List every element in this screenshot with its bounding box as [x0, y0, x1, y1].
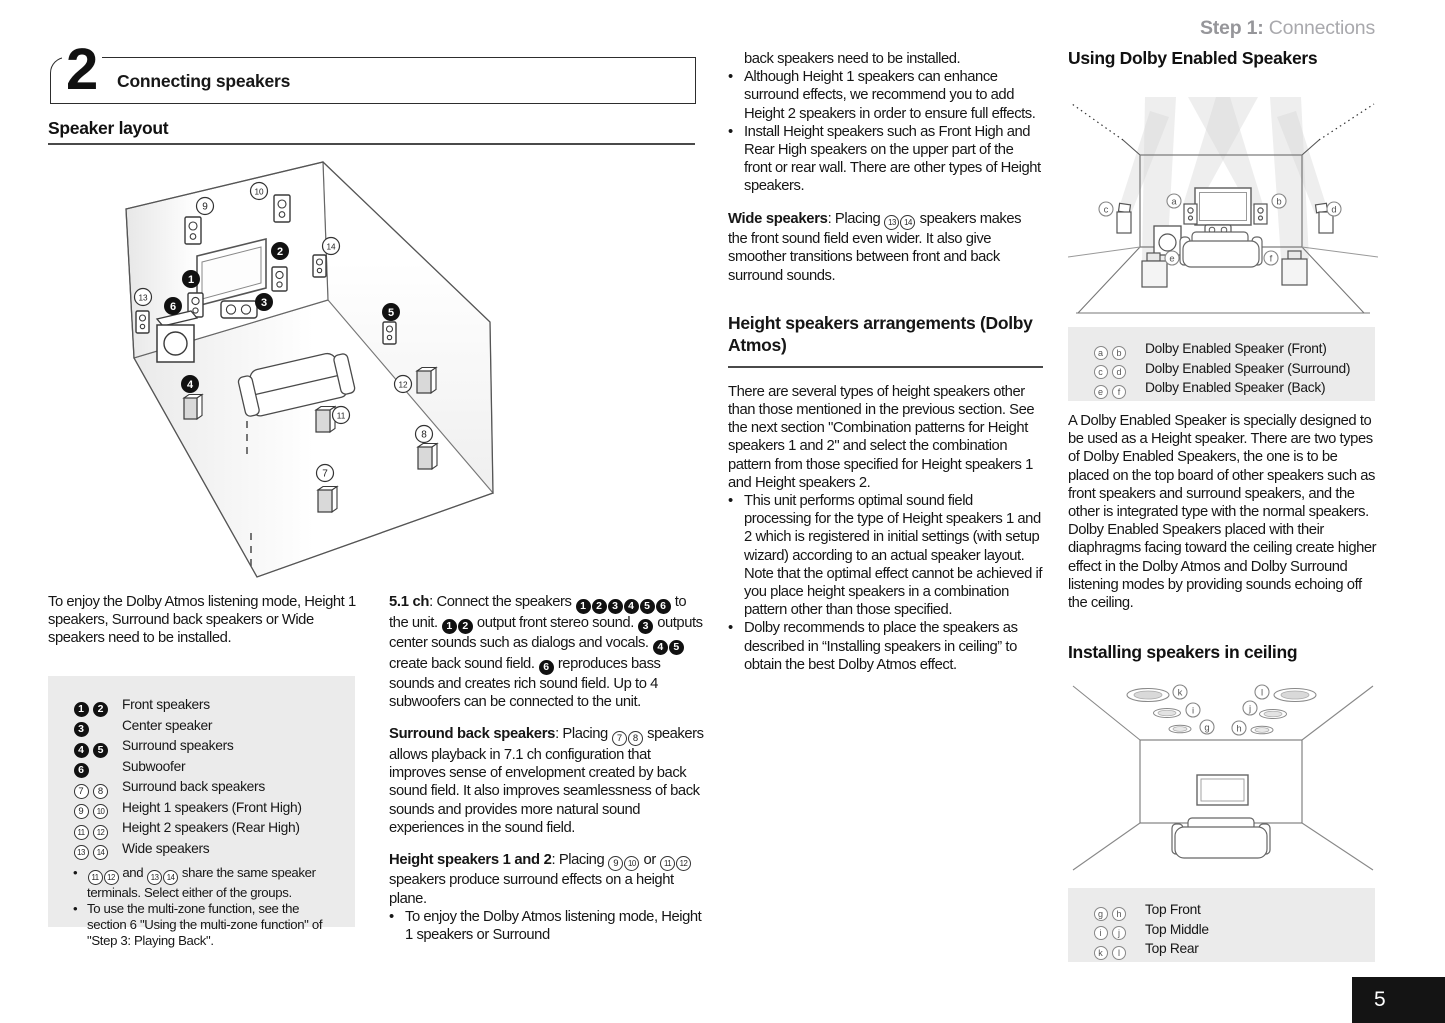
svg-text:9: 9	[202, 201, 208, 212]
legend-row: k lTop Rear	[1068, 940, 1375, 960]
section-title: Connecting speakers	[117, 71, 290, 92]
page-number-box: 5	[1352, 977, 1445, 1023]
sofa	[1172, 818, 1270, 858]
svg-text:10: 10	[254, 187, 264, 196]
legend-row: i jTop Middle	[1068, 921, 1375, 941]
col3-bullet-text: Install Height speakers such as Front Hi…	[744, 123, 1043, 196]
legend-label: Dolby Enabled Speaker (Surround)	[1145, 360, 1350, 380]
legend-note-text: 1112 and 1314 share the same speaker ter…	[87, 865, 341, 901]
svg-text:12: 12	[398, 380, 408, 389]
legend-row: 13 14Wide speakers	[48, 840, 355, 861]
legend-row: c dDolby Enabled Speaker (Surround)	[1068, 360, 1375, 380]
surround-right-speaker	[383, 322, 396, 344]
step-label: Step 1:	[1200, 17, 1264, 39]
svg-text:a: a	[1171, 196, 1177, 207]
legend-label: Top Middle	[1145, 921, 1209, 941]
col3-bullet-text: Although Height 1 speakers can enhance s…	[744, 68, 1043, 123]
legend-label: Surround speakers	[122, 737, 233, 758]
svg-text:6: 6	[170, 301, 176, 313]
para-surround-back: Surround back speakers: Placing 78 speak…	[389, 725, 705, 837]
col2-bullet: •To enjoy the Dolby Atmos listening mode…	[389, 908, 705, 944]
legend-label: Height 2 speakers (Rear High)	[122, 819, 300, 840]
svg-text:2: 2	[277, 246, 283, 258]
svg-text:11: 11	[337, 411, 346, 420]
bullet-dot: •	[728, 492, 744, 619]
col3-bullet2-text: Dolby recommends to place the speakers a…	[744, 619, 1043, 674]
legend-markers: 3	[73, 717, 122, 738]
bullet-dot: •	[389, 908, 405, 944]
legend-row: 1 2Front speakers	[48, 696, 355, 717]
svg-text:14: 14	[326, 242, 336, 251]
legend-row: 3Center speaker	[48, 717, 355, 738]
legend-markers: 11 12	[73, 819, 122, 840]
tv	[1195, 188, 1251, 225]
svg-text:1: 1	[188, 274, 194, 286]
center-speaker	[221, 301, 257, 318]
legend-label: Height 1 speakers (Front High)	[122, 799, 302, 820]
legend-markers: a b	[1093, 340, 1145, 360]
svg-text:g: g	[1204, 722, 1209, 733]
legend-row: 6Subwoofer	[48, 758, 355, 779]
legend-markers: e f	[1093, 379, 1145, 399]
legend-row: e fDolby Enabled Speaker (Back)	[1068, 379, 1375, 399]
dolby-enabled-legend-box: a bDolby Enabled Speaker (Front) c dDolb…	[1068, 327, 1375, 401]
legend-markers: k l	[1093, 940, 1145, 960]
height2-right-speaker	[417, 368, 436, 394]
speaker-layout-heading: Speaker layout	[48, 118, 168, 139]
bullet-dot: •	[73, 865, 87, 901]
legend-markers: 9 10	[73, 799, 122, 820]
col3-bullet2: •Dolby recommends to place the speakers …	[728, 619, 1043, 674]
para-height-types: There are several types of height speake…	[728, 383, 1043, 492]
col2-bullet-text: To enjoy the Dolby Atmos listening mode,…	[405, 908, 705, 944]
page-number: 5	[1374, 988, 1386, 1012]
bullet-dot: •	[728, 123, 744, 196]
legend-label: Dolby Enabled Speaker (Front)	[1145, 340, 1327, 360]
svg-text:l: l	[1261, 687, 1263, 698]
legend-label: Dolby Enabled Speaker (Back)	[1145, 379, 1325, 399]
subwoofer	[1154, 226, 1181, 255]
para-wide-speakers: Wide speakers: Placing 1314 speakers mak…	[728, 210, 1043, 285]
svg-text:f: f	[1270, 253, 1273, 264]
wide-right-speaker	[313, 255, 326, 277]
svg-text:b: b	[1276, 196, 1281, 207]
svg-text:e: e	[1169, 253, 1174, 264]
bullet-dot: •	[73, 901, 87, 950]
legend-markers: 7 8	[73, 778, 122, 799]
legend-label: Top Rear	[1145, 940, 1199, 960]
surround-left-speaker	[184, 395, 202, 420]
svg-text:j: j	[1248, 703, 1251, 714]
step-title: Connections	[1264, 17, 1375, 39]
svg-text:i: i	[1192, 705, 1194, 716]
legend-label: Wide speakers	[122, 840, 209, 861]
svg-text:7: 7	[322, 468, 328, 479]
wide-left-speaker	[136, 311, 149, 333]
surround-back-left-speaker	[318, 487, 337, 513]
subwoofer	[157, 311, 197, 362]
svg-text:h: h	[1236, 723, 1241, 734]
ceiling-legend-box: g hTop Front i jTop Middle k lTop Rear	[1068, 888, 1375, 962]
bullet-dot: •	[728, 68, 744, 123]
height2-left-speaker	[316, 407, 335, 433]
legend-row: g hTop Front	[1068, 901, 1375, 921]
height1-left-speaker	[185, 217, 201, 244]
col1-intro: To enjoy the Dolby Atmos listening mode,…	[48, 593, 366, 648]
col2: 5.1 ch: Connect the speakers 123456 to t…	[389, 593, 705, 944]
svg-text:8: 8	[421, 429, 427, 440]
running-header: Step 1: Connections	[1200, 17, 1375, 40]
svg-text:3: 3	[261, 297, 267, 309]
legend-markers: g h	[1093, 901, 1145, 921]
legend-markers: 6	[73, 758, 122, 779]
svg-text:13: 13	[138, 293, 148, 302]
tv	[1197, 775, 1248, 805]
svg-text:5: 5	[388, 307, 394, 319]
legend-row: a bDolby Enabled Speaker (Front)	[1068, 340, 1375, 360]
col3-bullet: •Although Height 1 speakers can enhance …	[728, 68, 1043, 123]
legend-row: 11 12Height 2 speakers (Rear High)	[48, 819, 355, 840]
surround-back-right-speaker	[418, 444, 437, 470]
para-height-speakers: Height speakers 1 and 2: Placing 910 or …	[389, 851, 705, 908]
svg-text:c: c	[1104, 204, 1109, 215]
legend-row: 7 8Surround back speakers	[48, 778, 355, 799]
heading-rule	[48, 143, 695, 145]
legend-note: •To use the multi-zone function, see the…	[73, 901, 341, 950]
ceiling-diagram: klijgh	[1068, 678, 1378, 878]
para-5-1-ch: 5.1 ch: Connect the speakers 123456 to t…	[389, 593, 705, 711]
front-right-speaker	[272, 267, 287, 291]
speaker-legend-box: 1 2Front speakers 3Center speaker 4 5Sur…	[48, 676, 355, 927]
bullet-dot: •	[728, 619, 744, 674]
ceiling-heading: Installing speakers in ceiling	[1068, 642, 1297, 663]
height-arrangements-heading: Height speakers arrangements (Dolby Atmo…	[728, 312, 1043, 368]
section-number: 2	[62, 41, 102, 99]
legend-notes: •1112 and 1314 share the same speaker te…	[48, 865, 355, 949]
legend-note: •1112 and 1314 share the same speaker te…	[73, 865, 341, 901]
legend-label: Center speaker	[122, 717, 212, 738]
legend-note-text: To use the multi-zone function, see the …	[87, 901, 341, 950]
col3-bullet: •Install Height speakers such as Front H…	[728, 123, 1043, 196]
legend-markers: 13 14	[73, 840, 122, 861]
manual-page: Step 1: Connections 2 Connecting speaker…	[0, 0, 1445, 1023]
height1-right-speaker	[274, 195, 290, 222]
legend-markers: i j	[1093, 921, 1145, 941]
svg-text:d: d	[1331, 204, 1336, 215]
ceiling-speakers	[1127, 689, 1316, 734]
svg-text:4: 4	[187, 379, 194, 391]
legend-label: Surround back speakers	[122, 778, 265, 799]
legend-label: Top Front	[1145, 901, 1201, 921]
bullet-continuation: back speakers need to be installed.	[744, 50, 1043, 68]
legend-label: Subwoofer	[122, 758, 185, 779]
dolby-enabled-diagram: abcdef	[1068, 87, 1378, 322]
legend-markers: 1 2	[73, 696, 122, 717]
col3-bullet2: •This unit performs optimal sound field …	[728, 492, 1043, 619]
dolby-enabled-heading: Using Dolby Enabled Speakers	[1068, 48, 1317, 69]
legend-label: Front speakers	[122, 696, 210, 717]
sofa	[1180, 232, 1262, 267]
col3: back speakers need to be installed. •Alt…	[728, 50, 1043, 674]
para-dolby-enabled: A Dolby Enabled Speaker is specially des…	[1068, 412, 1380, 612]
col3-bullet2-text: This unit performs optimal sound field p…	[744, 492, 1043, 619]
svg-text:k: k	[1178, 687, 1183, 698]
legend-row: 9 10Height 1 speakers (Front High)	[48, 799, 355, 820]
speaker-layout-diagram: 9102141136354121187	[45, 155, 705, 595]
legend-markers: c d	[1093, 360, 1145, 380]
legend-markers: 4 5	[73, 737, 122, 758]
legend-row: 4 5Surround speakers	[48, 737, 355, 758]
